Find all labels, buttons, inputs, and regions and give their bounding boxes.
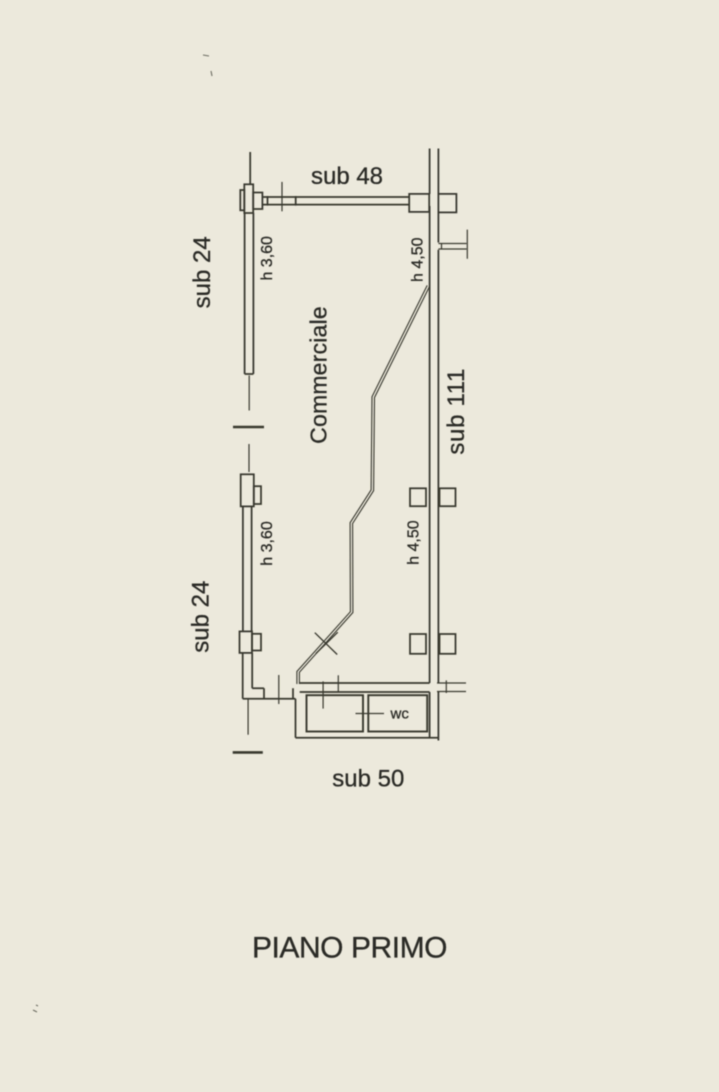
svg-text:h 4,50: h 4,50: [406, 520, 423, 565]
svg-text:sub 50: sub 50: [332, 766, 404, 793]
svg-text:sub 48: sub 48: [311, 163, 383, 190]
svg-text:PIANO PRIMO: PIANO PRIMO: [252, 932, 447, 965]
svg-text:sub 24: sub 24: [188, 581, 215, 653]
svg-text:sub 24: sub 24: [189, 236, 216, 308]
svg-text:sub 111: sub 111: [443, 368, 470, 455]
svg-text:h 3,60: h 3,60: [259, 521, 276, 566]
svg-text:h 3,60: h 3,60: [259, 236, 276, 281]
svg-text:h 4,50: h 4,50: [410, 237, 427, 282]
svg-text:wc: wc: [390, 705, 410, 722]
svg-text:Commerciale: Commerciale: [306, 306, 332, 444]
